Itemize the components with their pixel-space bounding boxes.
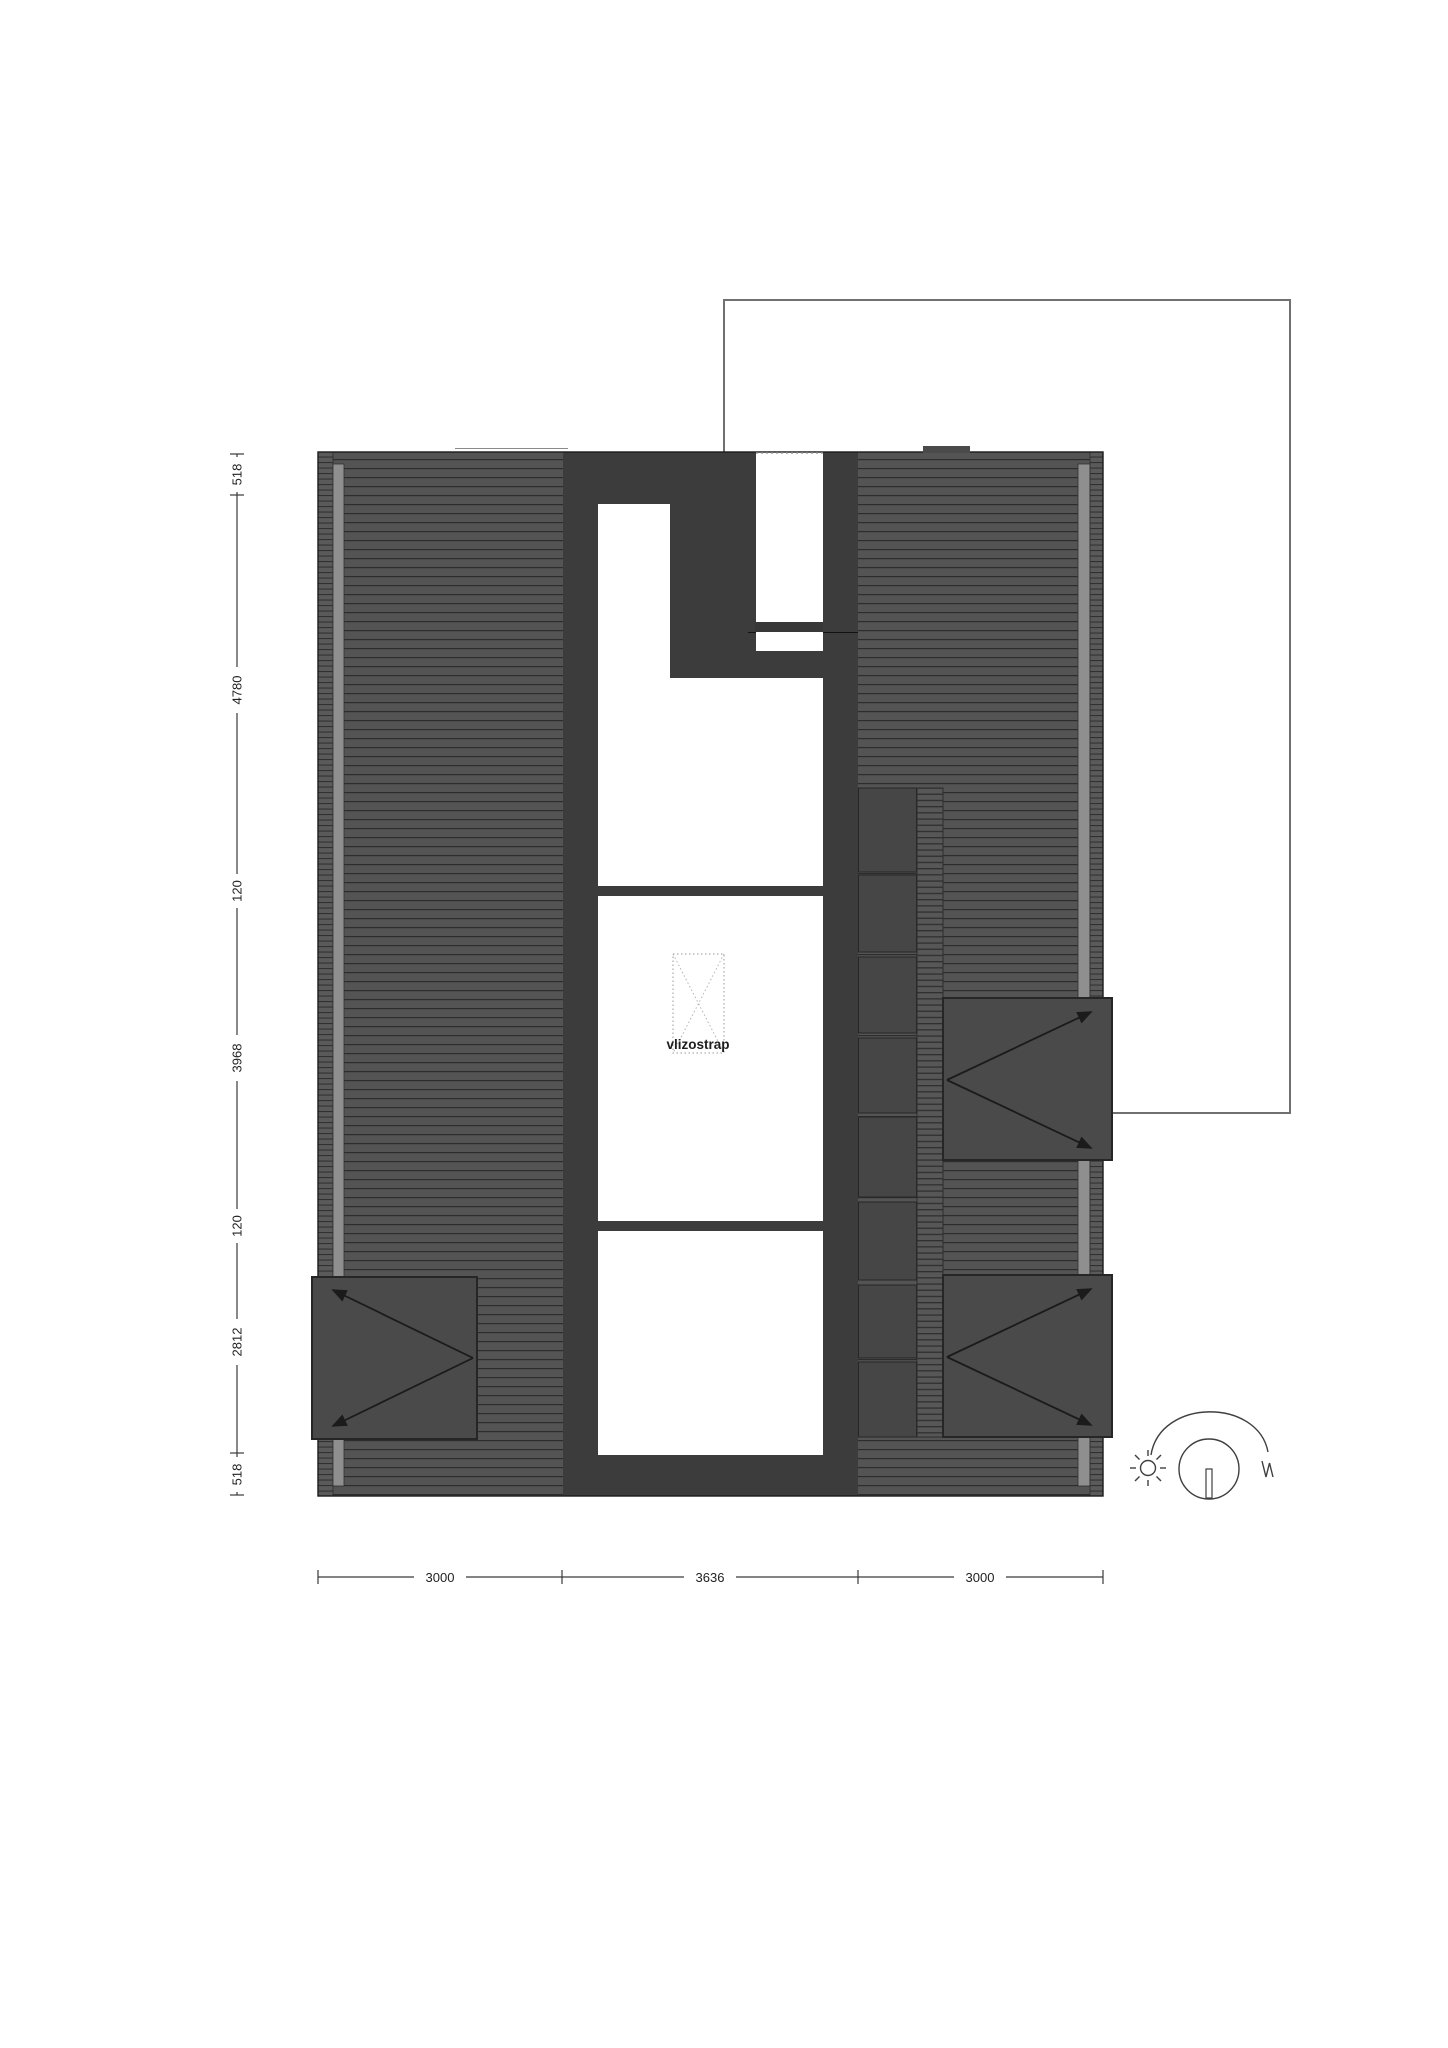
- roof-opening-top: [756, 452, 823, 622]
- ladder-strip: [917, 788, 943, 1437]
- sun-icon: [1130, 1450, 1166, 1486]
- dim-label-left-1: 518: [230, 464, 245, 486]
- dormer-window-right-1: [943, 998, 1112, 1160]
- dim-label-bottom-2: 3636: [696, 1570, 725, 1585]
- roof-plan-page: vlizostrap 518 4780 120 3968 120 2812 51…: [0, 0, 1448, 2048]
- roof-plan-drawing: vlizostrap 518 4780 120 3968 120 2812 51…: [0, 0, 1448, 2048]
- needle: [1206, 1469, 1212, 1498]
- ridge-bump: [923, 446, 970, 453]
- dim-label-left-4: 3968: [230, 1044, 245, 1073]
- stairwell-room-1: [598, 678, 823, 886]
- central-core: [563, 452, 858, 1496]
- dim-label-bottom-3: 3000: [966, 1570, 995, 1585]
- dimension-chain-left: 518 4780 120 3968 120 2812 518: [230, 454, 245, 1495]
- lintel-bar: [755, 622, 823, 632]
- arc-arrowhead-w: [1262, 1461, 1273, 1477]
- dormer-window-right-2: [943, 1275, 1112, 1437]
- dim-label-left-6: 2812: [230, 1328, 245, 1357]
- dim-label-left-7: 518: [230, 1464, 245, 1486]
- dim-label-left-3: 120: [230, 880, 245, 902]
- opening-sliver: [756, 632, 823, 651]
- stair-notch: [598, 504, 670, 678]
- dormer-window-left: [312, 1277, 477, 1439]
- sun-path-icon: [1130, 1412, 1273, 1499]
- dim-label-left-2: 4780: [230, 676, 245, 705]
- dim-label-left-5: 120: [230, 1215, 245, 1237]
- sun-arc: [1151, 1412, 1268, 1455]
- stairwell-room-2: [598, 896, 823, 1221]
- loft-ladder-label: vlizostrap: [666, 1037, 729, 1052]
- chimney-blocks: [859, 788, 917, 1437]
- dim-label-bottom-1: 3000: [426, 1570, 455, 1585]
- stairwell-room-3: [598, 1231, 823, 1455]
- dimension-line-bottom: 3000 3636 3000: [318, 1569, 1103, 1585]
